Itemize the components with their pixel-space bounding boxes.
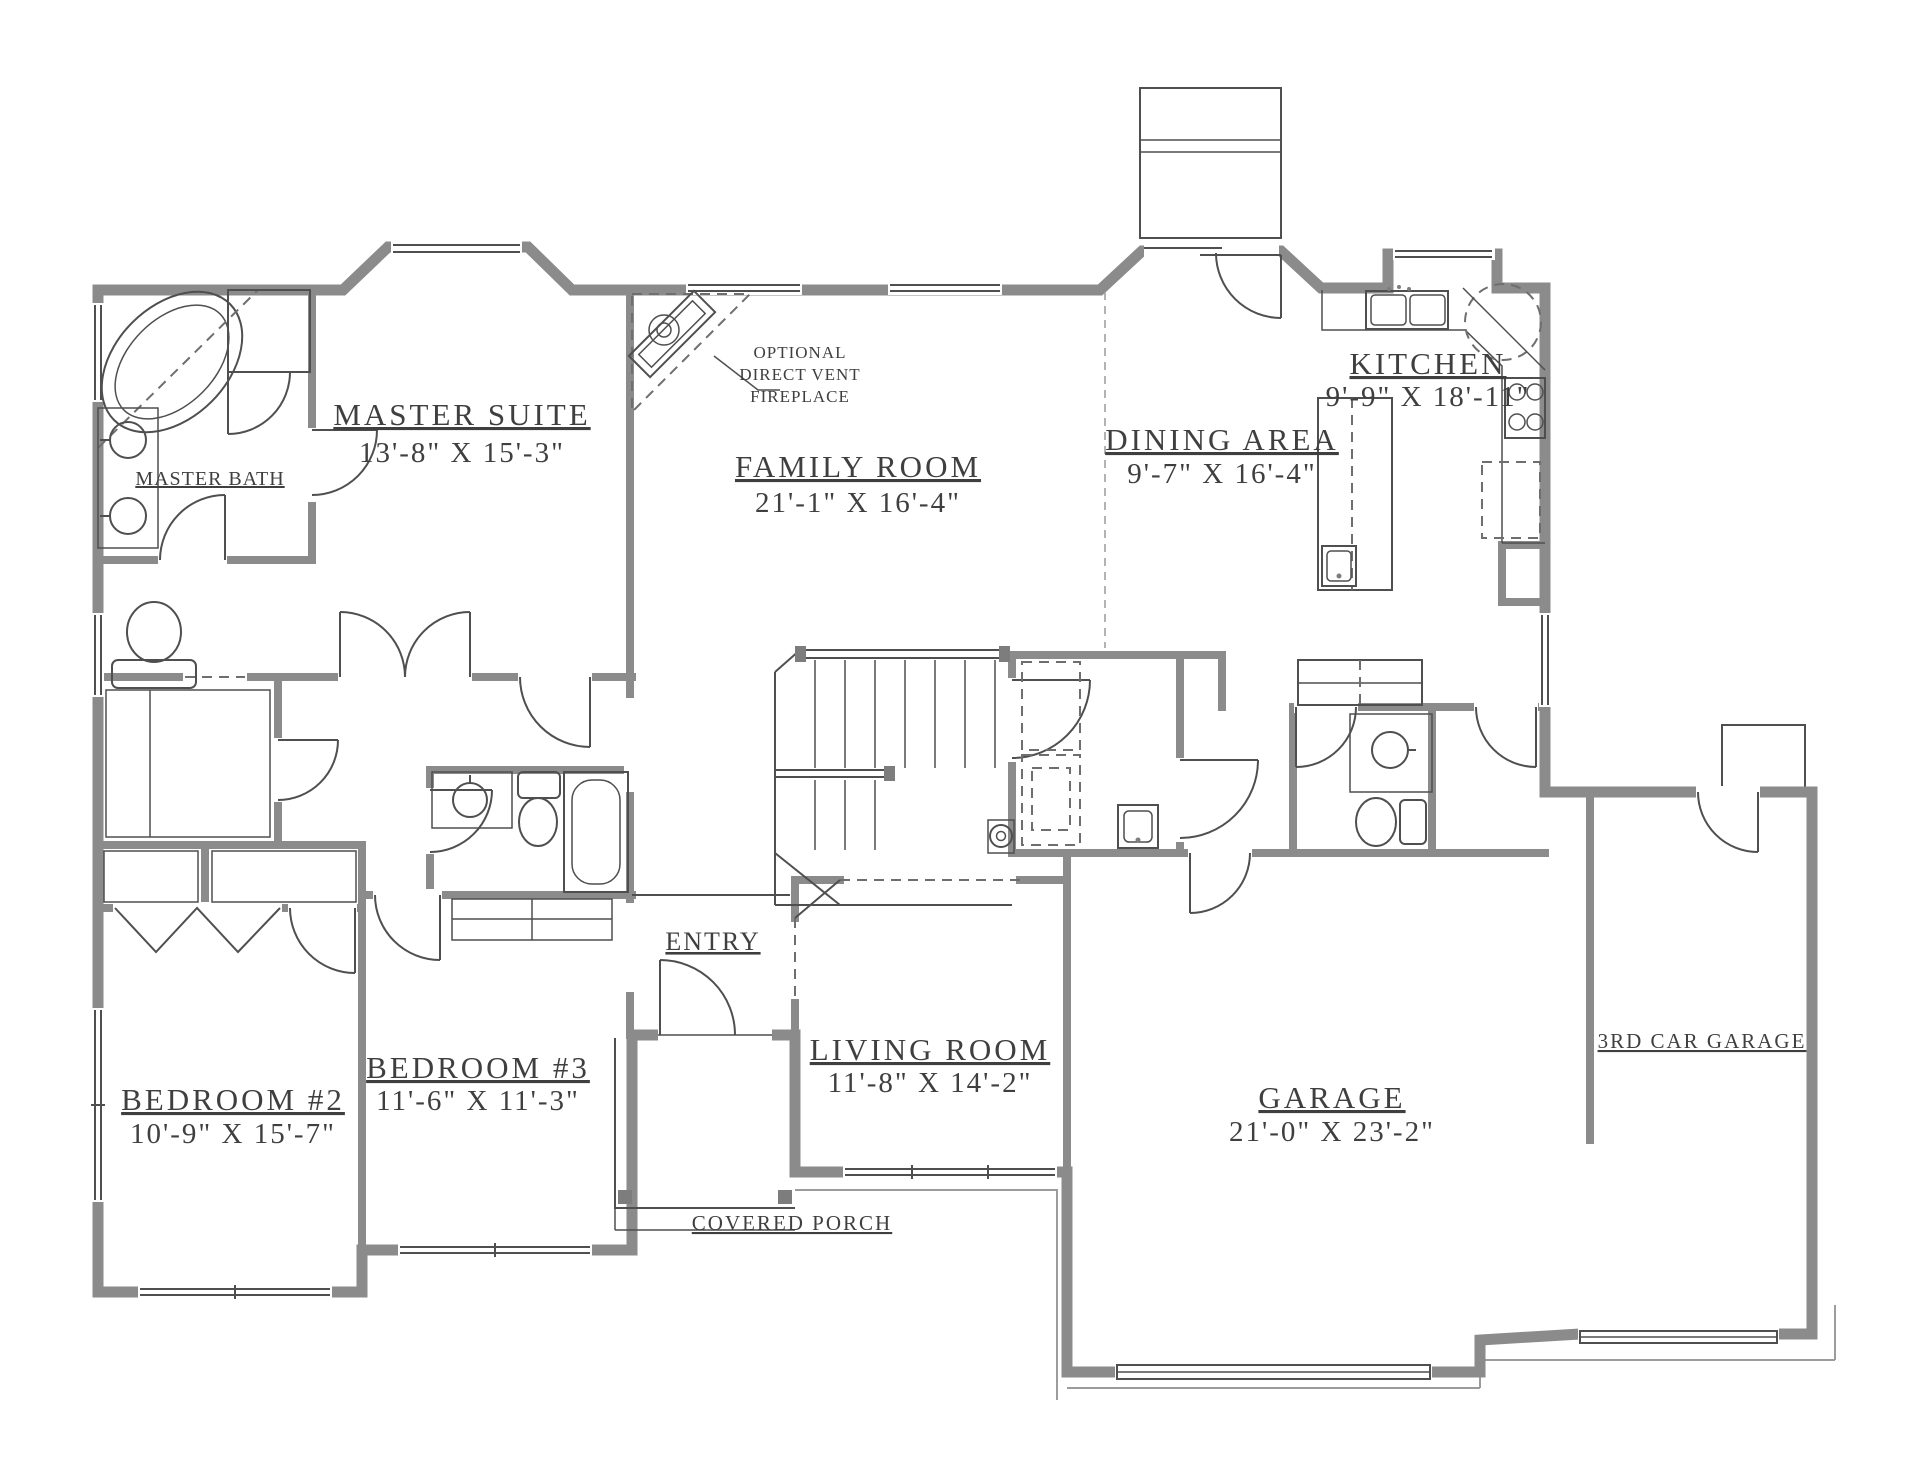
room-dims-dining-area: 9'-7" X 16'-4" — [1127, 458, 1316, 490]
linen-closets — [104, 851, 356, 902]
room-dims-living-room: 11'-8" X 14'-2" — [828, 1067, 1033, 1099]
room-label-covered-porch: COVERED PORCH — [692, 1211, 892, 1235]
toilet-icon — [518, 772, 560, 846]
floor-plan-sheet: MASTER SUITE 13'-8" X 15'-3" MASTER BATH… — [0, 0, 1920, 1482]
utility-door-2 — [1180, 760, 1258, 838]
room-label-family-room: FAMILY ROOM — [735, 449, 981, 484]
half-bath-sink-icon — [1350, 714, 1432, 792]
room-dims-kitchen: 9'-9" X 18'-11" — [1326, 381, 1531, 413]
utility-door — [1012, 680, 1090, 758]
bathtub-icon — [564, 772, 628, 892]
walkin-closet — [106, 690, 270, 837]
third-garage-side-door — [1698, 792, 1758, 852]
fireplace-note-line1: OPTIONAL — [754, 343, 847, 362]
third-garage-stoop — [1722, 725, 1805, 790]
sink-icon — [432, 772, 512, 828]
bedroom3-closet — [452, 899, 612, 940]
room-label-master-bath: MASTER BATH — [135, 468, 284, 490]
room-label-kitchen: KITCHEN — [1349, 346, 1506, 381]
floor-plan-drawing: MASTER SUITE 13'-8" X 15'-3" MASTER BATH… — [0, 0, 1920, 1482]
garage-entry-door — [1190, 853, 1250, 913]
fireplace-note-line2: DIRECT VENT — [739, 365, 860, 384]
master-suite-double-door — [340, 612, 470, 677]
room-dims-family-room: 21'-1" X 16'-4" — [755, 487, 961, 519]
fireplace-note: OPTIONAL DIRECT VENT FIREPLACE — [739, 343, 860, 406]
deck-stoop — [1140, 88, 1281, 238]
washer-icon — [1022, 662, 1080, 750]
room-dims-bedroom-3: 11'-6" X 11'-3" — [376, 1085, 580, 1117]
utility-sink-icon — [1118, 805, 1158, 848]
hall-door — [520, 677, 590, 747]
room-dims-garage: 21'-0" X 23'-2" — [1229, 1116, 1435, 1148]
half-bath-toilet-icon — [1356, 798, 1426, 846]
double-sink-icon — [1366, 285, 1448, 329]
patio-door — [1144, 248, 1281, 318]
stair-treads — [815, 660, 995, 850]
room-label-bedroom-2: BEDROOM #2 — [121, 1082, 345, 1117]
mud-closet-door — [1476, 707, 1536, 767]
half-bath-door — [1296, 707, 1356, 767]
room-dims-master-suite: 13'-8" X 15'-3" — [359, 437, 565, 469]
refrigerator-icon — [1482, 462, 1540, 538]
covered-porch-outline — [615, 1038, 795, 1230]
hall-bath-door — [430, 790, 492, 852]
staircase — [632, 646, 1012, 905]
toilet-room-door — [160, 495, 225, 560]
shower-door — [228, 372, 290, 434]
room-label-garage: GARAGE — [1258, 1080, 1405, 1115]
fireplace-note-line3: FIREPLACE — [750, 387, 850, 406]
shower-icon — [228, 290, 310, 372]
room-label-master-suite: MASTER SUITE — [333, 397, 590, 432]
bifold-closet-doors — [115, 908, 280, 952]
mud-hall-fixtures — [1298, 660, 1432, 846]
room-label-living-room: LIVING ROOM — [810, 1032, 1051, 1067]
bedroom2-door — [290, 908, 355, 973]
room-label-bedroom-3: BEDROOM #3 — [366, 1050, 590, 1085]
bedroom3-door — [375, 895, 440, 960]
front-door — [658, 960, 772, 1035]
room-dims-bedroom-2: 10'-9" X 15'-7" — [130, 1118, 336, 1150]
walkin-closet-door — [278, 740, 338, 800]
room-label-dining-area: DINING AREA — [1105, 422, 1339, 457]
room-label-third-car-garage: 3RD CAR GARAGE — [1598, 1029, 1807, 1053]
bench-icon — [1298, 660, 1422, 705]
room-label-entry: ENTRY — [665, 927, 760, 956]
